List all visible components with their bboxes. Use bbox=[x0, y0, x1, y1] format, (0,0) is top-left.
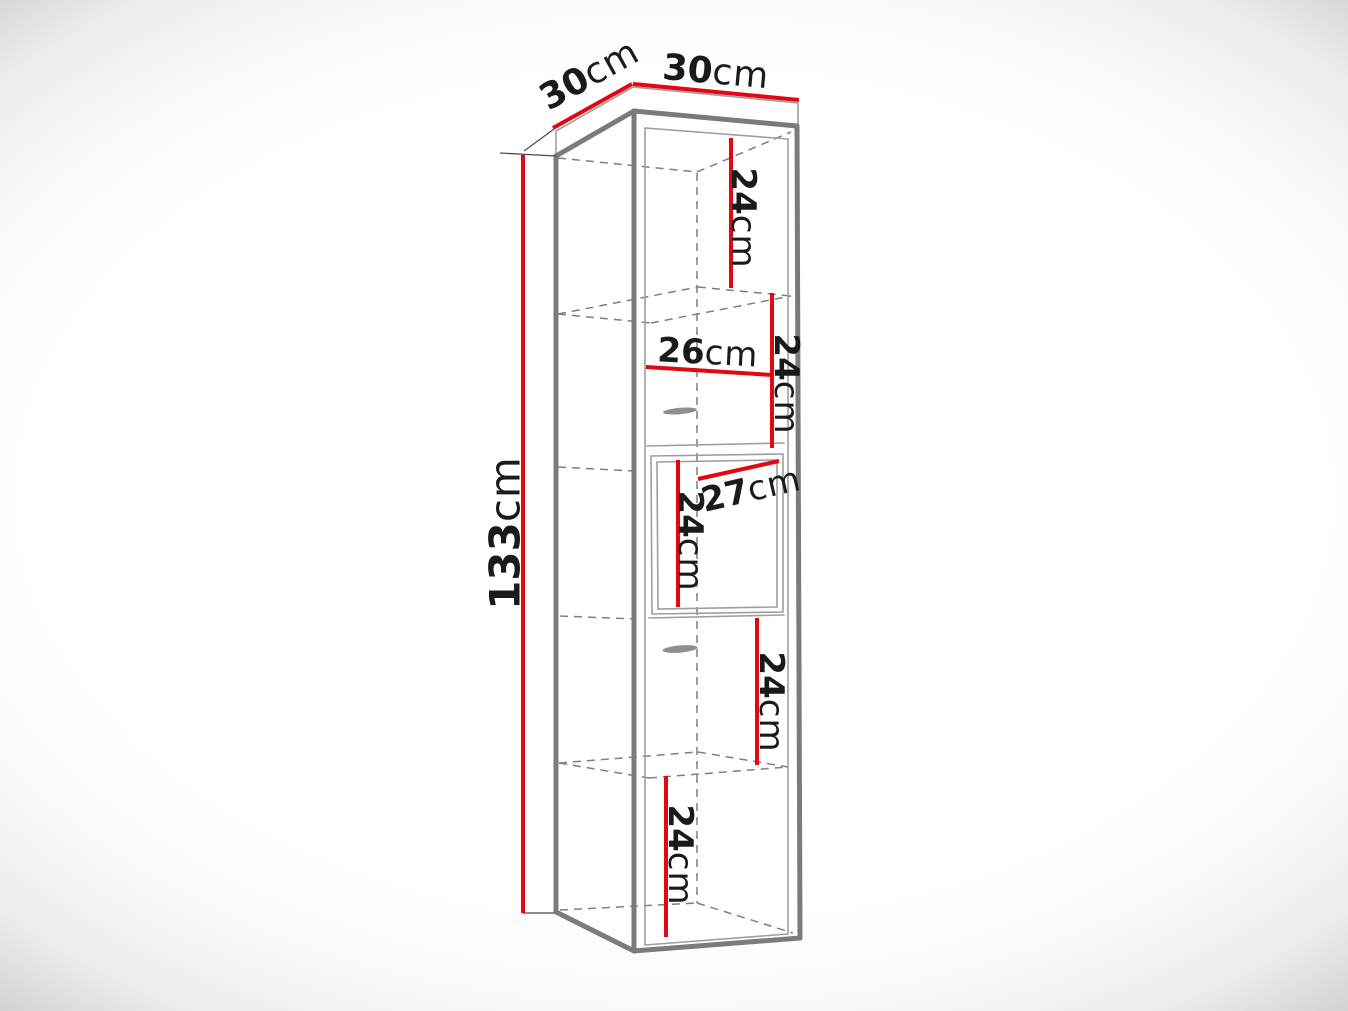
front-right-edge bbox=[797, 126, 800, 938]
dim-label-height-total: 133cm bbox=[481, 456, 530, 610]
dim-label-compartment-4: 24cm bbox=[751, 651, 791, 752]
cabinet-front-face bbox=[634, 111, 800, 951]
diagram-canvas: 30cm 30cm 133cm 24cm 24cm 26cm 24cm 27cm… bbox=[0, 0, 1348, 1011]
dim-label-inner-width: 26cm bbox=[656, 330, 759, 375]
height-top-tick bbox=[500, 153, 556, 156]
cabinet-side-face bbox=[556, 111, 634, 951]
cabinet-dimension-diagram: 30cm 30cm 133cm 24cm 24cm 26cm 24cm 27cm… bbox=[0, 0, 1348, 1011]
depth-extension-tick bbox=[524, 129, 554, 151]
dim-label-compartment-5: 24cm bbox=[660, 804, 700, 905]
dim-label-compartment-2: 24cm bbox=[766, 333, 806, 434]
dim-label-compartment-1: 24cm bbox=[723, 167, 763, 268]
